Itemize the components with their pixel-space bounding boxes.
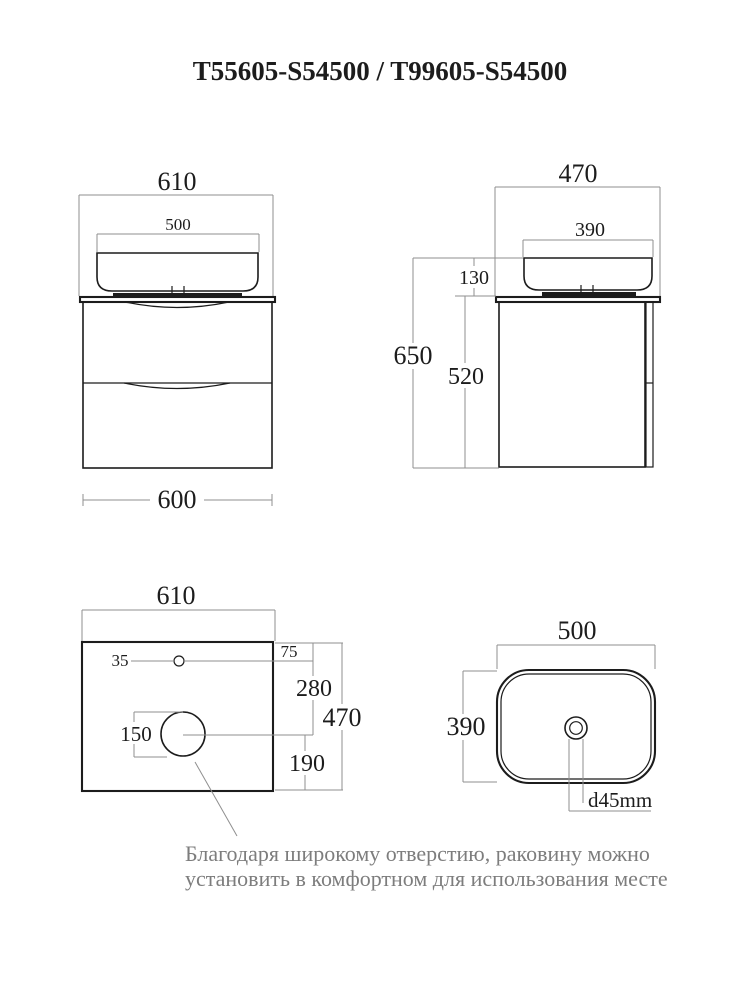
dim-sink-top-depth: 390: [447, 712, 486, 741]
annotation-note: Благодаря широкому отверстию, раковину м…: [185, 841, 668, 891]
sink-base: [542, 292, 636, 296]
dim-side-overall-depth: 470: [559, 159, 598, 188]
dim-hole-spacing: 280: [296, 676, 332, 702]
cabinet-front: [83, 302, 272, 468]
sink-side-outline: [524, 258, 652, 290]
dim-front-cabinet-width: 600: [158, 485, 197, 514]
dim-side-sink-height: 130: [459, 267, 489, 289]
dim-drain-offset: 190: [289, 751, 325, 777]
countertop-top-view: 610 35 75 280 190 470 150: [82, 581, 368, 836]
annotation-line-2: установить в комфортном для использовани…: [185, 866, 668, 891]
front-view: 610 500 600: [79, 167, 275, 514]
drawing-canvas: T55605-S54500 / T99605-S54500 610 500 60…: [0, 0, 750, 1000]
annotation-line-1: Благодаря широкому отверстию, раковину м…: [185, 841, 650, 866]
sink-top-view: 500 390 d45mm: [440, 616, 655, 812]
page-title: T55605-S54500 / T99605-S54500: [193, 56, 568, 86]
dim-top-width: 610: [157, 581, 196, 610]
sink-top-outer: [497, 670, 655, 783]
technical-drawing-page: T55605-S54500 / T99605-S54500 610 500 60…: [0, 0, 750, 1000]
dim-faucet-hole-diameter: 35: [112, 651, 129, 670]
dim-drain-diameter: d45mm: [588, 788, 652, 812]
drawer-front-edge: [646, 302, 653, 467]
dim-drain-hole-diameter: 150: [120, 722, 152, 746]
dim-side-total-height: 650: [394, 341, 433, 370]
dim-side-sink-depth: 390: [575, 219, 605, 241]
dim-top-depth: 470: [323, 703, 362, 732]
dim-sink-top-width: 500: [558, 616, 597, 645]
dim-front-overall-width: 610: [158, 167, 197, 196]
cabinet-side: [499, 302, 645, 467]
sink-front-outline: [97, 253, 258, 291]
side-view: 470 390 130 650 520: [388, 159, 660, 468]
dim-faucet-hole-offset: 75: [281, 642, 298, 661]
dim-side-cabinet-height: 520: [448, 364, 484, 390]
drawer-handle-recess-bottom: [124, 383, 230, 389]
dim-front-sink-width: 500: [165, 215, 191, 234]
